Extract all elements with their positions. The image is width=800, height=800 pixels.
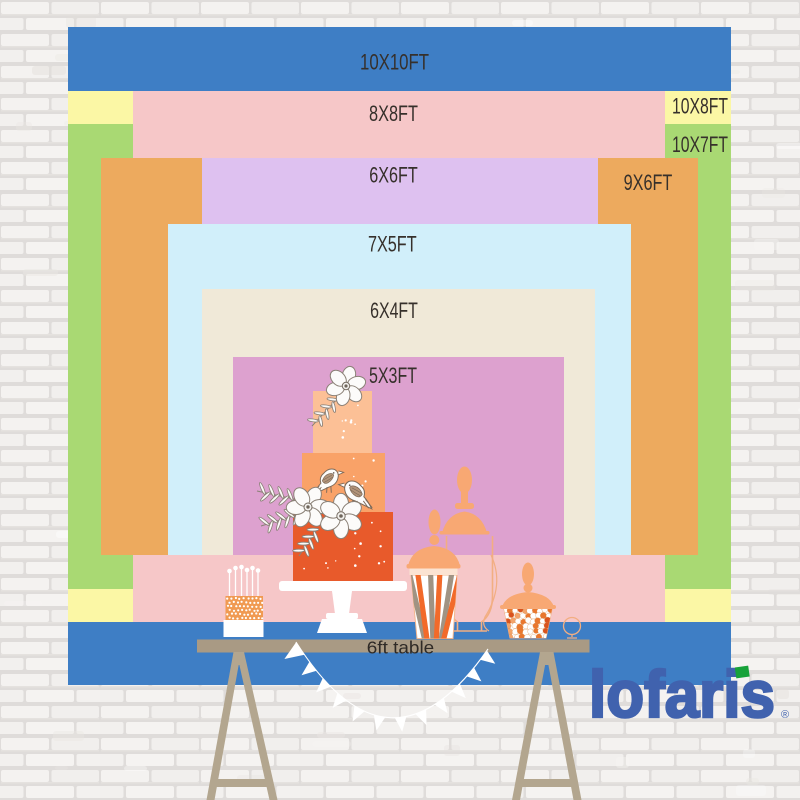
svg-text:9X6FT: 9X6FT <box>624 170 673 195</box>
svg-text:6X4FT: 6X4FT <box>370 298 418 323</box>
svg-text:6ft table: 6ft table <box>367 638 435 658</box>
svg-text:10X7FT: 10X7FT <box>672 132 728 157</box>
svg-text:10X8FT: 10X8FT <box>672 94 728 119</box>
svg-text:7X5FT: 7X5FT <box>368 232 417 257</box>
svg-text:5X3FT: 5X3FT <box>369 363 417 388</box>
svg-text:6X6FT: 6X6FT <box>369 163 418 188</box>
svg-text:10X10FT: 10X10FT <box>360 50 429 75</box>
svg-text:8X8FT: 8X8FT <box>369 101 418 126</box>
svg-text:®: ® <box>781 709 789 721</box>
